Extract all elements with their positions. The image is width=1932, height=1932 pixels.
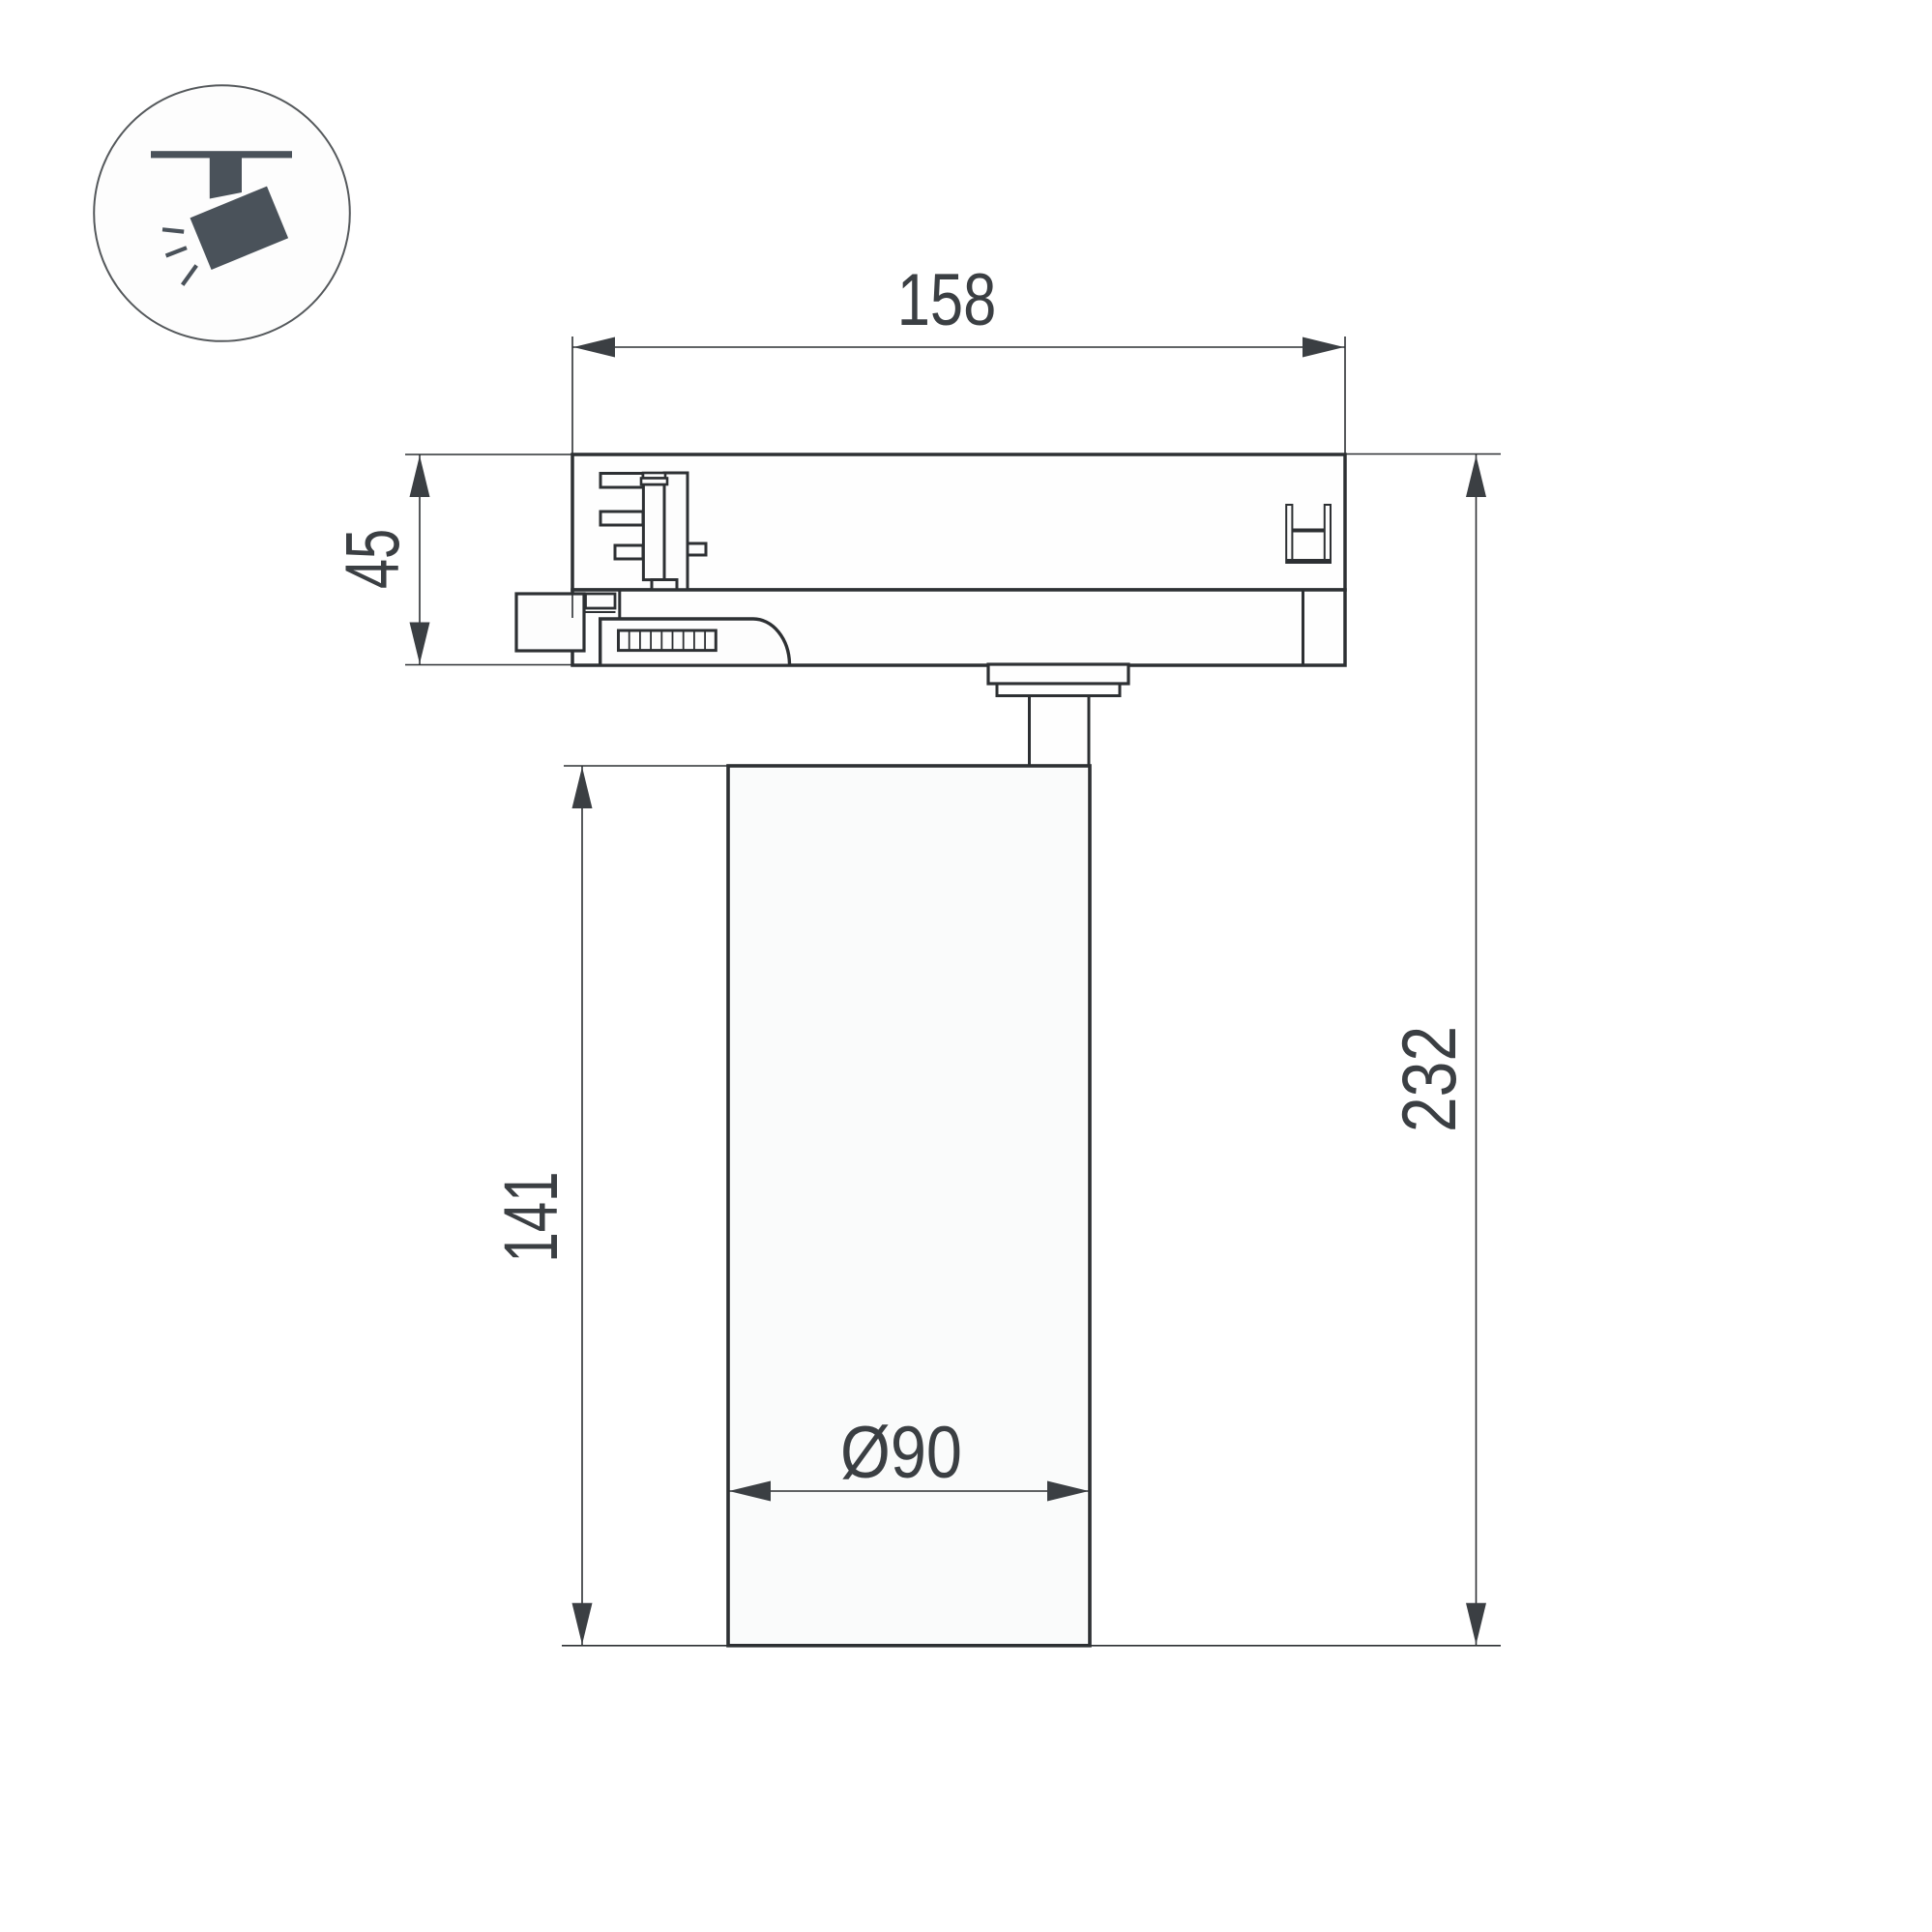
svg-text:158: 158 bbox=[897, 258, 997, 341]
svg-text:Ø90: Ø90 bbox=[840, 1412, 962, 1494]
svg-text:45: 45 bbox=[330, 529, 415, 589]
svg-text:141: 141 bbox=[488, 1172, 574, 1263]
svg-text:232: 232 bbox=[1387, 1026, 1472, 1132]
